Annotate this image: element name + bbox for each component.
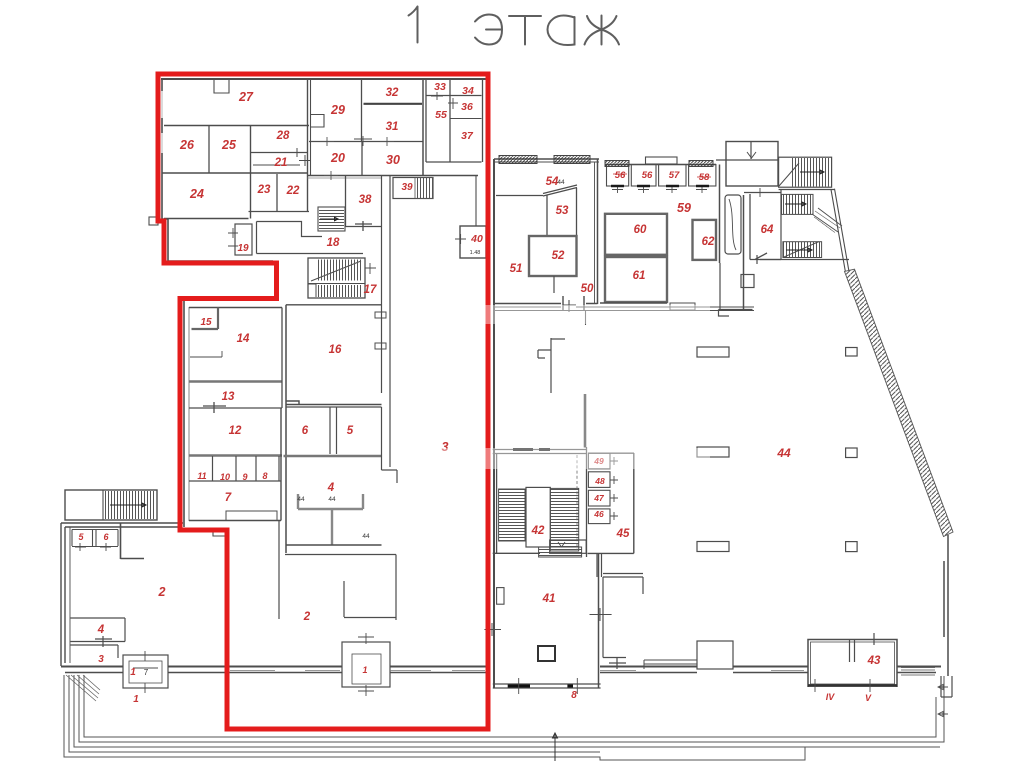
svg-text:9: 9 [242,472,247,482]
svg-text:10: 10 [220,472,230,482]
svg-text:37: 37 [461,130,474,142]
svg-text:21: 21 [274,157,288,169]
svg-text:23: 23 [257,184,271,196]
svg-text:8: 8 [571,690,577,701]
svg-text:44: 44 [362,533,370,540]
svg-text:IV: IV [826,692,836,702]
svg-text:13: 13 [222,391,235,403]
svg-text:56: 56 [615,170,626,181]
svg-text:32: 32 [386,87,399,99]
svg-text:11: 11 [197,471,206,481]
svg-text:1: 1 [133,694,139,705]
svg-text:18: 18 [327,237,340,249]
svg-text:25: 25 [221,138,237,152]
svg-text:6: 6 [302,425,309,437]
svg-text:4: 4 [97,624,105,636]
svg-text:44: 44 [297,496,305,503]
svg-text:56: 56 [642,170,653,181]
svg-text:33: 33 [434,81,446,93]
svg-text:14: 14 [237,333,250,345]
svg-text:36: 36 [461,101,473,113]
svg-text:61: 61 [633,270,646,282]
svg-text:30: 30 [386,153,400,167]
svg-text:44: 44 [557,179,565,186]
svg-text:15: 15 [200,317,212,328]
svg-text:41: 41 [542,593,556,605]
svg-text:2: 2 [303,611,311,623]
svg-text:55: 55 [435,109,447,121]
svg-text:1.48: 1.48 [470,250,481,256]
svg-text:53: 53 [556,205,569,217]
svg-text:1: 1 [362,665,367,675]
svg-text:38: 38 [359,194,372,206]
svg-text:31: 31 [386,121,399,133]
svg-text:V: V [865,693,872,703]
svg-text:39: 39 [401,182,413,193]
svg-text:24: 24 [189,187,204,201]
svg-text:26: 26 [179,138,195,152]
svg-text:47: 47 [593,493,605,503]
svg-text:2: 2 [158,585,166,599]
svg-text:28: 28 [276,130,290,142]
svg-text:43: 43 [867,655,881,667]
svg-text:64: 64 [761,224,774,236]
svg-text:58: 58 [699,172,710,183]
svg-text:44: 44 [776,446,791,460]
svg-text:29: 29 [330,103,345,117]
svg-text:27: 27 [238,90,254,104]
svg-text:3: 3 [98,654,104,665]
svg-text:20: 20 [330,151,345,165]
svg-text:19: 19 [237,243,249,254]
svg-text:8: 8 [262,471,267,481]
svg-text:7: 7 [225,492,232,504]
svg-text:4: 4 [327,482,335,494]
svg-text:57: 57 [669,170,680,181]
svg-text:60: 60 [634,224,647,236]
svg-text:12: 12 [229,425,242,437]
svg-text:1: 1 [130,667,136,678]
svg-text:45: 45 [616,528,630,540]
svg-text:17: 17 [364,284,377,296]
svg-text:52: 52 [552,250,565,262]
svg-text:16: 16 [329,344,342,356]
svg-text:42: 42 [531,525,545,537]
svg-text:59: 59 [677,201,691,215]
svg-text:7: 7 [144,668,149,677]
svg-text:51: 51 [510,263,523,275]
svg-text:40: 40 [470,233,483,245]
svg-text:62: 62 [702,236,715,248]
svg-text:44: 44 [328,496,336,503]
svg-text:5: 5 [347,425,354,437]
svg-text:46: 46 [593,509,604,519]
svg-text:22: 22 [286,185,300,197]
svg-text:50: 50 [581,283,594,295]
svg-text:48: 48 [594,476,605,486]
